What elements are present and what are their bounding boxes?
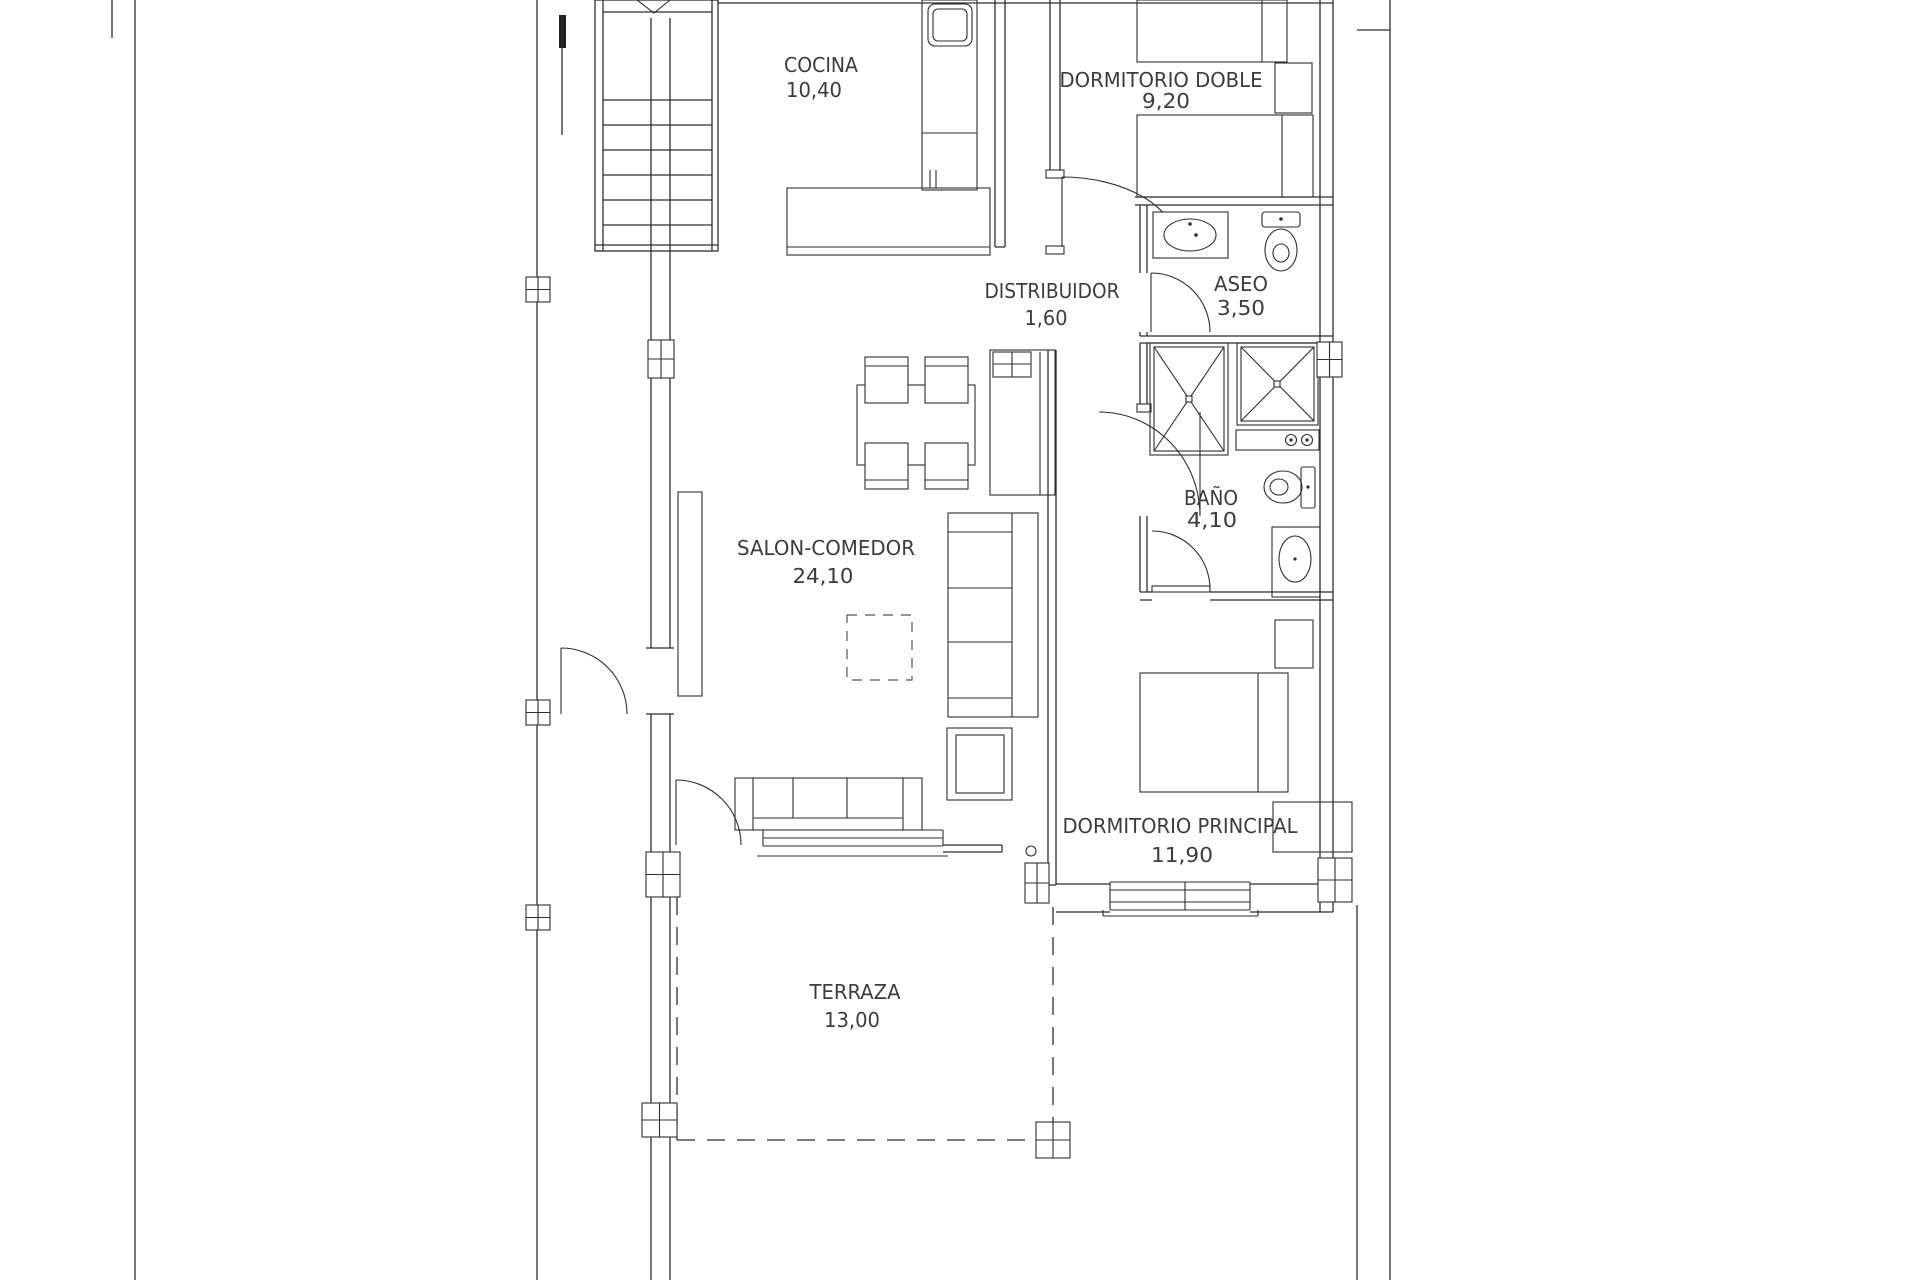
door-aseo [1151, 273, 1210, 332]
nightstand-doble [1275, 63, 1312, 113]
window-salon [757, 830, 948, 856]
door-bano [1152, 531, 1210, 592]
pillar [526, 700, 550, 725]
pillar [526, 277, 550, 302]
room-area-aseo: 3,50 [1217, 296, 1265, 320]
coffee-table [847, 615, 912, 680]
twin-bed-2 [1137, 115, 1313, 197]
aseo-washbasin [1153, 212, 1228, 258]
pillar [1025, 863, 1049, 903]
floor-plan-drawing: COCINA 10,40 DORMITORIO DOBLE 9,20 DISTR… [0, 0, 1920, 1280]
room-area-distribuidor: 1,60 [1025, 306, 1068, 330]
twin-bed-1 [1137, 0, 1287, 62]
room-label-bano: BAÑO [1184, 486, 1238, 510]
staircase [595, 0, 718, 251]
kitchen-counters [787, 0, 990, 255]
room-label-distribuidor: DISTRIBUIDOR [985, 279, 1120, 303]
armchair [947, 728, 1012, 800]
dining-chair [925, 357, 968, 403]
room-area-terraza: 13,00 [824, 1008, 880, 1032]
pillar [1036, 1122, 1070, 1158]
room-area-bano: 4,10 [1187, 508, 1237, 532]
boundary-lines [112, 0, 1390, 1280]
shower-tray-2 [1237, 343, 1318, 425]
pillar [648, 340, 674, 378]
door-stop-marker [1026, 846, 1036, 856]
room-area-cocina: 10,40 [786, 78, 842, 102]
room-label-cocina: COCINA [784, 53, 858, 77]
bano-washbasin [1272, 527, 1320, 597]
pillar [642, 1103, 677, 1137]
kitchen-island-counter [787, 188, 990, 255]
room-area-dormitorio-principal: 11,90 [1151, 843, 1213, 867]
pillar [1317, 342, 1342, 377]
room-label-aseo: ASEO [1214, 272, 1268, 296]
room-area-dormitorio-doble: 9,20 [1142, 89, 1190, 113]
entry-closet [990, 350, 1055, 495]
dining-chair [865, 357, 908, 403]
bano-toilet [1264, 467, 1315, 508]
interior-walls [943, 0, 1333, 912]
room-label-terraza: TERRAZA [809, 980, 901, 1004]
sofa-vertical [948, 513, 1038, 717]
floor-plan-canvas: COCINA 10,40 DORMITORIO DOBLE 9,20 DISTR… [0, 0, 1920, 1280]
stair-direction-arrow-icon [637, 0, 670, 13]
door-terraza [676, 780, 741, 845]
door-exterior [561, 648, 627, 714]
right-wall [1320, 0, 1333, 912]
sofa-horizontal [735, 778, 922, 830]
dining-chair [865, 443, 908, 489]
shower-tray-1 [1150, 343, 1228, 455]
pillar [646, 852, 680, 897]
room-label-dormitorio-principal: DORMITORIO PRINCIPAL [1063, 814, 1299, 838]
nightstand-principal [1275, 620, 1313, 668]
room-label-salon-comedor: SALON-COMEDOR [737, 536, 915, 560]
dining-chair [925, 443, 968, 489]
window-dormitorio-principal [1103, 882, 1258, 916]
tv-unit [678, 492, 702, 696]
pillar [1318, 858, 1352, 902]
double-bed [1140, 673, 1288, 792]
left-wall [646, 18, 674, 1280]
room-area-salon-comedor: 24,10 [793, 564, 854, 588]
pillar [526, 905, 550, 930]
bathroom-shelf [1236, 430, 1319, 450]
aseo-toilet [1262, 212, 1300, 271]
